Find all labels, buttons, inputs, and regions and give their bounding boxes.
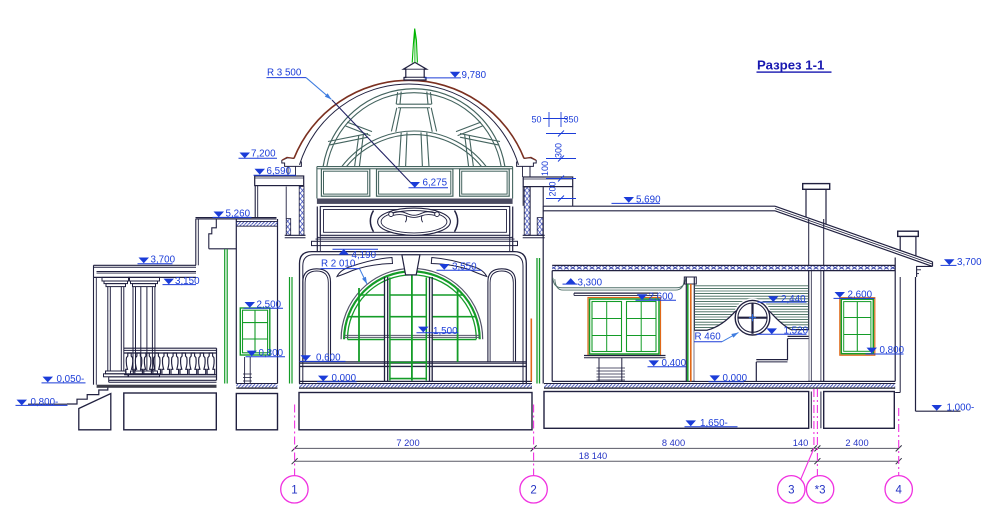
svg-text:0,800: 0,800 (880, 345, 905, 356)
svg-text:2,500: 2,500 (257, 300, 282, 311)
svg-text:2 400: 2 400 (845, 438, 868, 448)
svg-text:Разрез 1-1: Разрез 1-1 (757, 58, 824, 73)
svg-text:140: 140 (793, 438, 809, 448)
svg-text:6,275: 6,275 (423, 178, 448, 189)
svg-text:3,150: 3,150 (175, 276, 200, 287)
svg-text:8 400: 8 400 (662, 438, 685, 448)
svg-text:50: 50 (532, 115, 542, 125)
svg-text:1: 1 (291, 484, 297, 496)
svg-text:R 460: R 460 (695, 332, 722, 343)
svg-text:300: 300 (554, 143, 564, 158)
svg-text:3,700: 3,700 (957, 257, 982, 268)
svg-text:350: 350 (564, 115, 579, 125)
svg-text:R 3 500: R 3 500 (267, 68, 302, 79)
svg-text:18 140: 18 140 (579, 451, 607, 461)
svg-text:1,000-: 1,000- (947, 402, 975, 413)
svg-text:2: 2 (530, 484, 536, 496)
svg-text:R 2 010: R 2 010 (321, 259, 356, 270)
svg-text:100: 100 (540, 161, 550, 176)
svg-text:0,800: 0,800 (259, 348, 284, 359)
svg-text:0,400: 0,400 (662, 358, 687, 369)
svg-text:0,800-: 0,800- (31, 397, 59, 408)
svg-text:4: 4 (895, 484, 902, 496)
svg-text:200: 200 (548, 181, 558, 196)
svg-text:1,650-: 1,650- (700, 418, 728, 429)
svg-text:*3: *3 (815, 484, 826, 496)
svg-text:7 200: 7 200 (396, 438, 419, 448)
svg-text:3: 3 (788, 484, 794, 496)
svg-text:3,300: 3,300 (578, 277, 603, 288)
svg-text:2,440: 2,440 (781, 294, 806, 305)
svg-text:3,550: 3,550 (452, 262, 477, 273)
svg-text:1,500: 1,500 (433, 326, 458, 337)
svg-text:9,780: 9,780 (462, 70, 487, 81)
